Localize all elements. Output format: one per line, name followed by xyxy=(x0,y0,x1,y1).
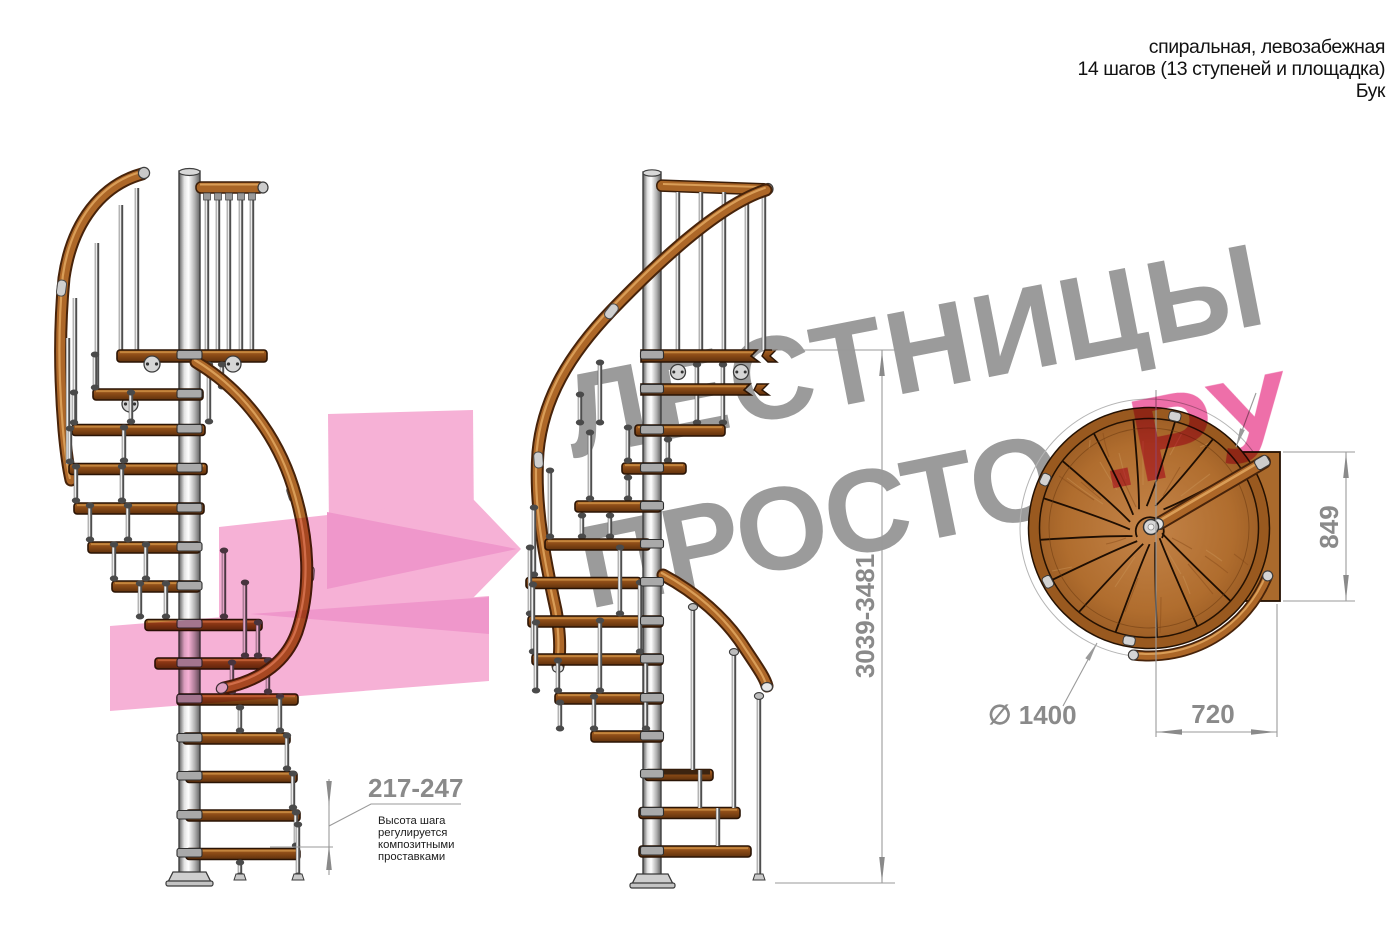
svg-text:Высота шага: Высота шага xyxy=(378,815,446,827)
svg-text:спиральная, левозабежная: спиральная, левозабежная xyxy=(1149,36,1385,58)
svg-text:217-247: 217-247 xyxy=(368,773,463,803)
svg-text:регулируется: регулируется xyxy=(378,827,447,839)
svg-text:Бук: Бук xyxy=(1356,80,1386,102)
svg-text:849: 849 xyxy=(1314,505,1344,548)
svg-text:проставками: проставками xyxy=(378,851,445,863)
svg-text:композитными: композитными xyxy=(378,839,455,851)
svg-text:14 шагов (13 ступеней и площад: 14 шагов (13 ступеней и площадка) xyxy=(1077,58,1385,80)
svg-text:3039-3481: 3039-3481 xyxy=(850,554,880,678)
svg-text:720: 720 xyxy=(1191,699,1234,729)
svg-text:∅ 1400: ∅ 1400 xyxy=(988,700,1077,730)
